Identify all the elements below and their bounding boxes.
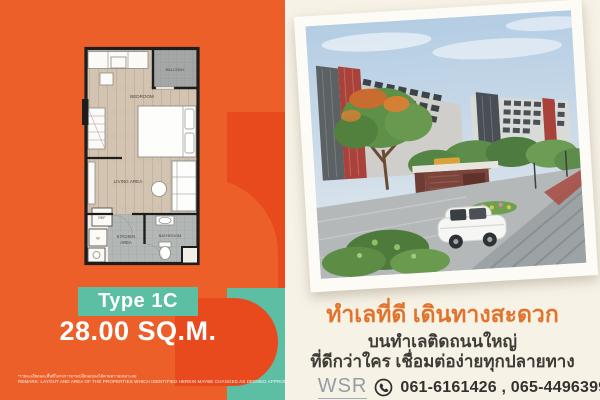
right-panel: ทำเลที่ดี เดินทางสะดวก บนทำเลติดถนนใหญ่ …	[285, 0, 600, 400]
kitchen-label-2: AREA	[120, 240, 132, 245]
desk	[111, 57, 126, 68]
pillow	[185, 109, 194, 129]
toilet	[160, 247, 171, 260]
condo-render-illustration	[305, 10, 586, 279]
bathroom-label: BATHROOM	[159, 233, 182, 238]
project-photo	[294, 0, 598, 293]
chair	[100, 73, 113, 85]
disclaimer-english: REMARK: LAYOUT AND AREA OF THE PROPERTIE…	[18, 379, 285, 385]
round-table	[152, 182, 167, 197]
entrance-door	[82, 99, 89, 125]
tv-cabinet	[88, 162, 95, 204]
pillow	[185, 133, 194, 153]
unit-area-text: 28.00 SQ.M.	[28, 316, 248, 347]
service-shaft	[182, 247, 198, 264]
unit-type-badge: Type 1C	[78, 287, 198, 316]
kitchen-label-1: KITCHEN	[117, 234, 135, 239]
floorplan-diagram: BALCONY BEDROOM LIVING AREA REF W KITCHE…	[80, 46, 200, 266]
contact-row: WSR 061-6161426 , 065-4496399	[325, 375, 600, 400]
ref-label: REF	[98, 216, 106, 220]
balcony-label: BALCONY	[165, 67, 184, 72]
phone-circle-icon	[374, 378, 393, 397]
disclaimer: *รายละเอียดและพื้นที่โครงการอาจเปลี่ยนแป…	[18, 374, 285, 385]
balcony-door	[156, 87, 174, 90]
wsr-logo: WSR	[318, 376, 368, 399]
phone-numbers: 061-6161426 , 065-4496399	[400, 379, 600, 397]
left-panel: BALCONY BEDROOM LIVING AREA REF W KITCHE…	[0, 0, 285, 400]
living-label: LIVING AREA	[114, 179, 144, 184]
sofa	[172, 161, 196, 211]
bedroom-label: BEDROOM	[130, 94, 154, 99]
sink-counter	[88, 248, 105, 262]
flyer: BALCONY BEDROOM LIVING AREA REF W KITCHE…	[0, 0, 600, 400]
washer-label: W	[96, 237, 100, 241]
washbasin	[159, 217, 171, 223]
kitchen-floor	[108, 214, 145, 264]
subline-2: ที่ดีกว่าใคร เชื่อมต่อง่ายทุกปลายทาง	[285, 348, 600, 375]
